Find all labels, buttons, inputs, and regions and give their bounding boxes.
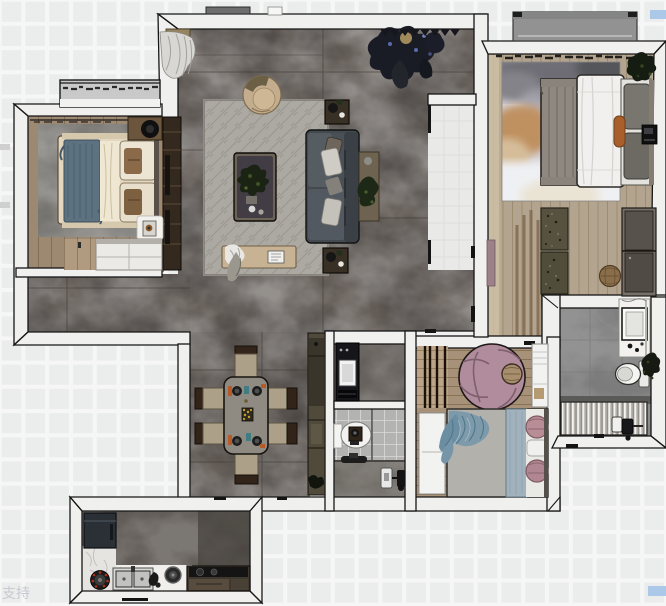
svg-text:支持: 支持 [2, 585, 30, 601]
